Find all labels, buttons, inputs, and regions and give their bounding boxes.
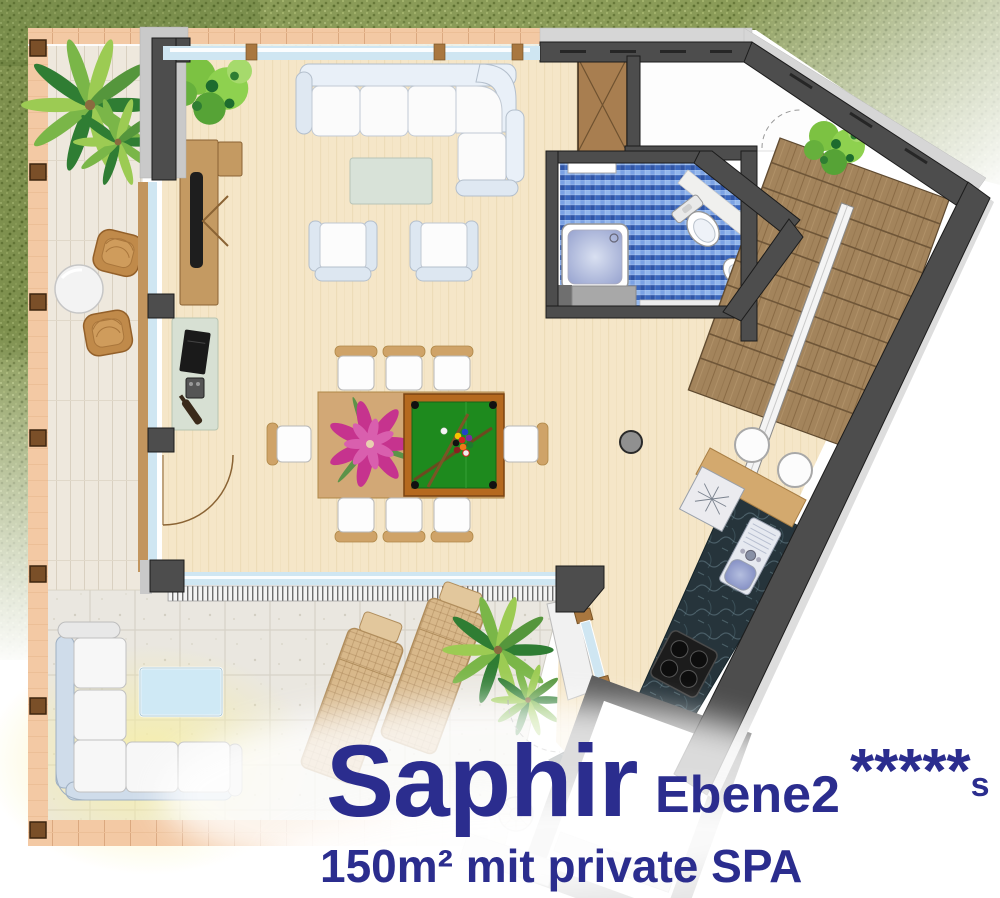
bar-stool — [778, 453, 812, 487]
tv — [190, 172, 203, 268]
dining-chair — [431, 498, 473, 542]
dining-chair — [335, 498, 377, 542]
star-rating: *****s — [850, 737, 990, 806]
wicker-chair — [82, 308, 135, 357]
dining-chair — [383, 498, 425, 542]
dining-chair — [335, 346, 377, 390]
bathroom-vanity — [558, 285, 572, 306]
dining-chair — [383, 346, 425, 390]
floor-plan-page: Saphir Ebene2 *****s 150m² mit private S… — [0, 0, 1000, 898]
dining-chair — [504, 423, 548, 465]
dining-chair — [267, 423, 311, 465]
desk — [172, 318, 218, 430]
sliding-shutter-track — [168, 586, 556, 601]
armchair — [309, 221, 377, 281]
wardrobe-closet — [578, 58, 627, 152]
shower — [562, 224, 628, 290]
window-wall-left — [148, 182, 157, 572]
subtitle-label: 150m² mit private SPA — [320, 840, 802, 892]
wall-bathroom — [546, 151, 712, 163]
coffee-table — [350, 158, 432, 204]
apartment-name: Saphir — [326, 724, 638, 838]
dining-chair — [431, 346, 473, 390]
round-patio-table — [55, 265, 103, 313]
bathroom-vanity-top — [572, 286, 636, 306]
desk-device — [186, 378, 204, 398]
terrace-border-top — [28, 28, 542, 44]
outdoor-glass-table — [140, 668, 222, 716]
title-block: Saphir Ebene2 *****s 150m² mit private S… — [160, 700, 1000, 898]
pool-table — [404, 394, 504, 496]
level-label: Ebene2 — [655, 766, 840, 824]
armchair — [410, 221, 478, 281]
bathroom-shelf — [568, 163, 616, 173]
column — [620, 431, 642, 453]
bar-stool — [735, 428, 769, 462]
floor-plan: Saphir Ebene2 *****s 150m² mit private S… — [0, 0, 1000, 898]
window-frame-left — [138, 182, 148, 572]
